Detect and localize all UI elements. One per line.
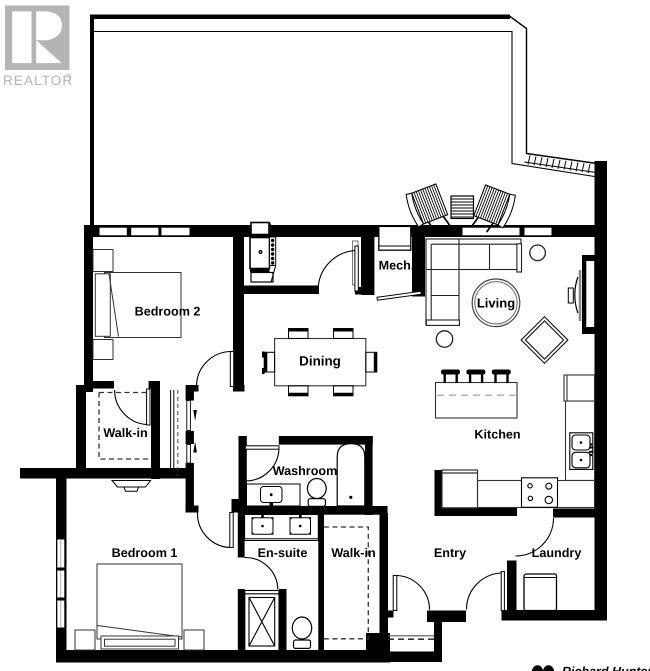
svg-text:Bedroom 2: Bedroom 2 xyxy=(135,305,201,319)
svg-text:Walk-in: Walk-in xyxy=(103,426,147,440)
svg-text:®: ® xyxy=(67,74,73,81)
svg-text:Living: Living xyxy=(477,296,515,311)
svg-text:Laundry: Laundry xyxy=(532,546,582,560)
svg-text:REALTOR: REALTOR xyxy=(3,73,73,88)
svg-text:Washroom: Washroom xyxy=(273,464,338,478)
svg-text:Kitchen: Kitchen xyxy=(474,428,520,442)
svg-text:Richard Hunter: Richard Hunter xyxy=(562,665,650,671)
svg-text:En-suite: En-suite xyxy=(258,546,308,560)
svg-text:Entry: Entry xyxy=(434,546,466,560)
svg-text:Dining: Dining xyxy=(299,354,341,369)
svg-text:Bedroom 1: Bedroom 1 xyxy=(112,546,178,560)
svg-text:Mech.: Mech. xyxy=(379,259,415,273)
svg-text:Walk-in: Walk-in xyxy=(331,546,375,560)
